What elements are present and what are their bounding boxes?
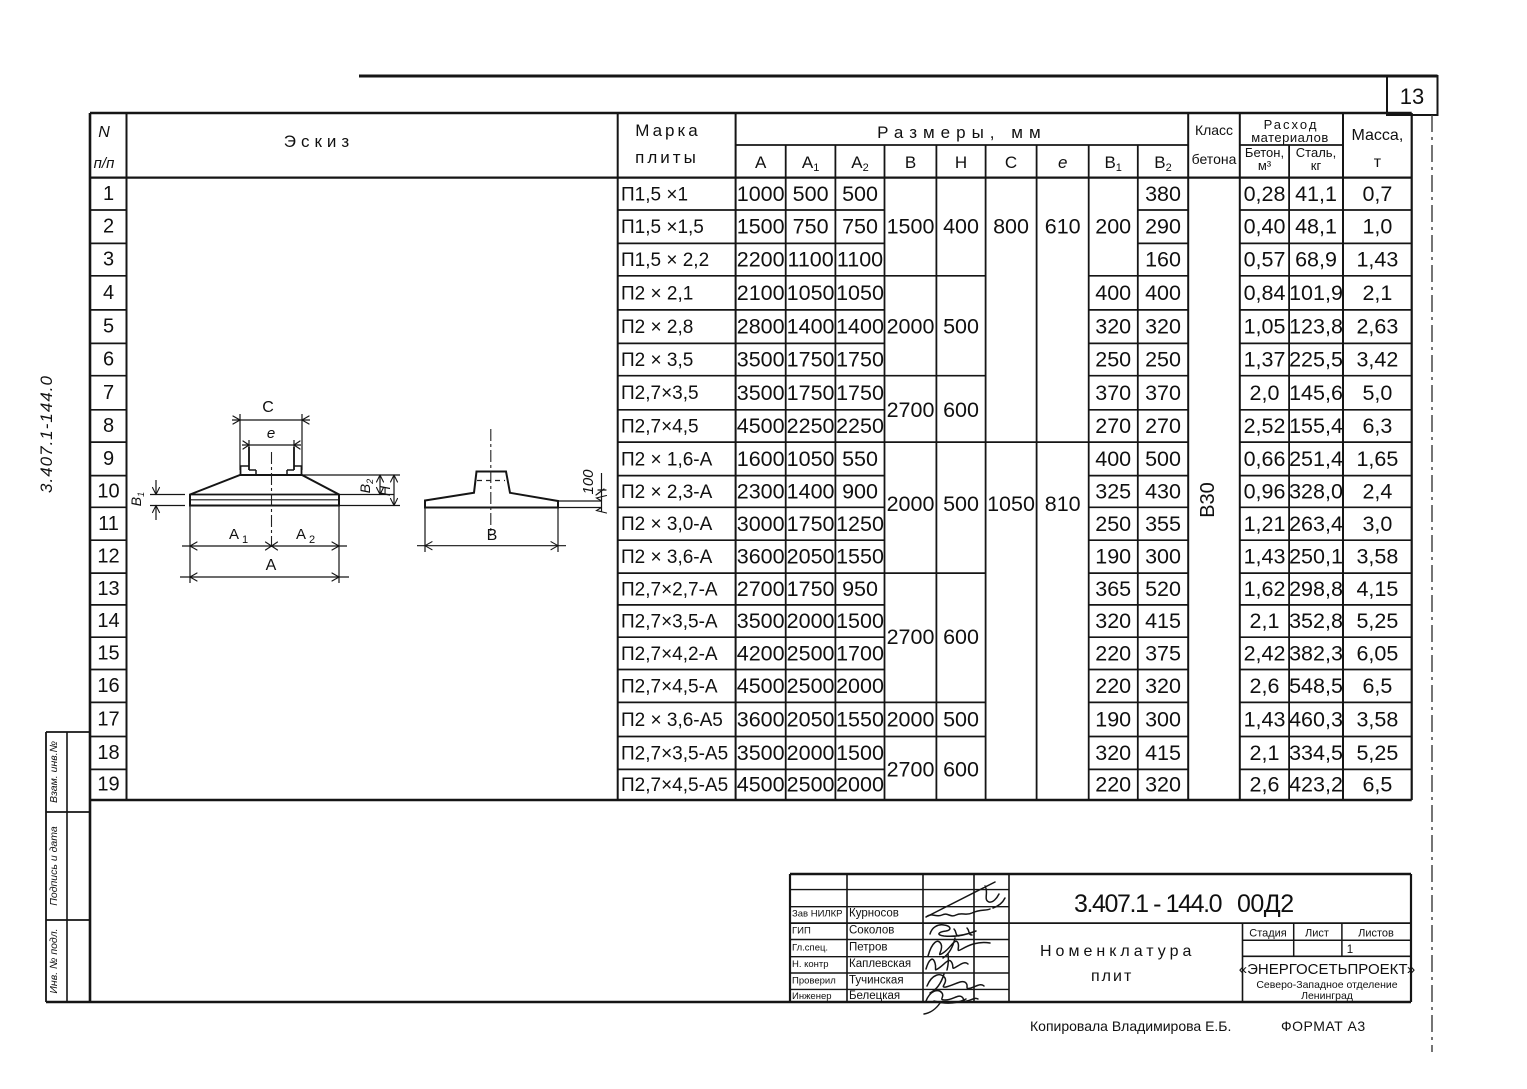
svg-text:12: 12 (97, 546, 119, 568)
svg-text:П2 × 1,6-А: П2 × 1,6-А (621, 449, 713, 470)
svg-text:1400: 1400 (836, 315, 884, 339)
svg-text:7: 7 (103, 382, 114, 404)
svg-text:1750: 1750 (836, 348, 884, 372)
svg-text:C: C (262, 399, 274, 416)
svg-text:1,62: 1,62 (1244, 577, 1286, 601)
svg-text:м³: м³ (1258, 158, 1272, 173)
svg-text:0,7: 0,7 (1362, 182, 1392, 206)
svg-text:Каплевская: Каплевская (849, 958, 911, 970)
svg-text:17: 17 (97, 709, 119, 731)
svg-text:9: 9 (103, 448, 114, 470)
svg-text:Белецкая: Белецкая (849, 990, 900, 1002)
svg-text:220: 220 (1095, 674, 1131, 698)
svg-text:1400: 1400 (787, 480, 835, 504)
svg-text:6,5: 6,5 (1362, 773, 1392, 797)
svg-text:3,58: 3,58 (1356, 708, 1398, 732)
svg-text:e: e (1058, 153, 1067, 172)
svg-text:Листов: Листов (1358, 928, 1394, 940)
svg-text:П2,7×2,7-А: П2,7×2,7-А (621, 580, 718, 601)
svg-text:ФОРМАТ А3: ФОРМАТ А3 (1281, 1018, 1366, 1034)
svg-text:2000: 2000 (887, 492, 935, 516)
svg-text:2,52: 2,52 (1244, 414, 1286, 438)
svg-text:Петров: Петров (849, 942, 887, 954)
svg-text:320: 320 (1145, 315, 1181, 339)
svg-text:2500: 2500 (787, 674, 835, 698)
svg-text:Ленинград: Ленинград (1301, 990, 1353, 1002)
svg-text:1,0: 1,0 (1362, 215, 1392, 239)
svg-text:500: 500 (943, 492, 979, 516)
svg-text:263,4: 263,4 (1289, 512, 1343, 536)
svg-text:1500: 1500 (887, 215, 935, 239)
svg-text:2100: 2100 (737, 281, 785, 305)
svg-text:4200: 4200 (737, 641, 785, 665)
svg-text:2050: 2050 (787, 708, 835, 732)
svg-text:270: 270 (1095, 414, 1131, 438)
svg-text:415: 415 (1145, 741, 1181, 765)
svg-text:155,4: 155,4 (1289, 414, 1343, 438)
svg-text:П2 × 3,5: П2 × 3,5 (621, 350, 693, 371)
svg-text:4,15: 4,15 (1356, 577, 1398, 601)
svg-text:3.407.1-144.0: 3.407.1-144.0 (37, 375, 56, 493)
svg-text:1750: 1750 (787, 381, 835, 405)
svg-text:320: 320 (1145, 773, 1181, 797)
svg-text:Тучинская: Тучинская (849, 975, 904, 987)
svg-text:П2 × 3,0-А: П2 × 3,0-А (621, 514, 713, 535)
svg-text:13: 13 (97, 578, 119, 600)
svg-text:0,66: 0,66 (1244, 447, 1286, 471)
svg-text:370: 370 (1095, 381, 1131, 405)
svg-text:П2,7×4,5: П2,7×4,5 (621, 417, 699, 438)
svg-text:Класс: Класс (1195, 122, 1233, 138)
svg-text:1050: 1050 (987, 492, 1035, 516)
svg-text:B: B (487, 527, 498, 544)
svg-text:2000: 2000 (787, 741, 835, 765)
svg-text:5,25: 5,25 (1356, 741, 1398, 765)
svg-text:68,9: 68,9 (1295, 248, 1337, 272)
svg-text:750: 750 (842, 215, 878, 239)
svg-text:810: 810 (1045, 492, 1081, 516)
svg-text:3,58: 3,58 (1356, 545, 1398, 569)
svg-text:2000: 2000 (887, 708, 935, 732)
svg-text:A: A (755, 153, 767, 172)
svg-text:2: 2 (103, 216, 114, 238)
svg-text:3500: 3500 (737, 741, 785, 765)
svg-text:Лист: Лист (1305, 928, 1329, 940)
svg-text:3500: 3500 (737, 348, 785, 372)
svg-text:16: 16 (97, 675, 119, 697)
svg-text:500: 500 (842, 182, 878, 206)
svg-text:370: 370 (1145, 381, 1181, 405)
svg-text:2300: 2300 (737, 480, 785, 504)
svg-text:Размеры, мм: Размеры, мм (877, 123, 1046, 142)
svg-text:B: B (905, 153, 916, 172)
svg-text:352,8: 352,8 (1289, 609, 1343, 633)
svg-text:П2 × 2,3-А: П2 × 2,3-А (621, 482, 713, 503)
svg-text:8: 8 (103, 415, 114, 437)
svg-text:1750: 1750 (787, 348, 835, 372)
svg-text:1550: 1550 (836, 545, 884, 569)
svg-text:1700: 1700 (836, 641, 884, 665)
svg-text:5,0: 5,0 (1362, 381, 1392, 405)
svg-text:320: 320 (1145, 674, 1181, 698)
svg-text:320: 320 (1095, 609, 1131, 633)
svg-text:2,4: 2,4 (1362, 480, 1392, 504)
svg-text:2000: 2000 (836, 674, 884, 698)
svg-text:Соколов: Соколов (849, 925, 894, 937)
svg-text:2: 2 (309, 534, 315, 546)
svg-text:4500: 4500 (737, 773, 785, 797)
svg-text:3600: 3600 (737, 545, 785, 569)
svg-text:Номенклатура: Номенклатура (1040, 943, 1195, 960)
svg-text:1750: 1750 (787, 512, 835, 536)
svg-text:П2,7×4,5-А5: П2,7×4,5-А5 (621, 775, 728, 796)
svg-text:220: 220 (1095, 641, 1131, 665)
svg-text:A: A (296, 526, 306, 543)
svg-text:Н. контр: Н. контр (792, 959, 829, 970)
svg-text:П2 × 3,6-А5: П2 × 3,6-А5 (621, 710, 723, 731)
svg-text:п/п: п/п (94, 155, 115, 172)
svg-text:«ЭНЕРГОСЕТЬПРОЕКТ»: «ЭНЕРГОСЕТЬПРОЕКТ» (1239, 961, 1415, 978)
svg-text:18: 18 (97, 742, 119, 764)
svg-text:190: 190 (1095, 545, 1131, 569)
svg-text:101,9: 101,9 (1289, 281, 1343, 305)
svg-text:Взам. инв.№: Взам. инв.№ (48, 741, 60, 803)
svg-text:4: 4 (103, 282, 114, 304)
svg-text:48,1: 48,1 (1295, 215, 1337, 239)
svg-text:П2,7×4,5-А: П2,7×4,5-А (621, 677, 718, 698)
svg-text:6: 6 (103, 349, 114, 371)
svg-text:материалов: материалов (1251, 130, 1329, 145)
svg-text:200: 200 (1095, 215, 1131, 239)
svg-text:100: 100 (580, 469, 597, 495)
svg-text:1500: 1500 (836, 741, 884, 765)
svg-text:1500: 1500 (836, 609, 884, 633)
svg-text:1: 1 (103, 183, 114, 205)
svg-text:П1,5 × 2,2: П1,5 × 2,2 (621, 250, 709, 271)
svg-text:300: 300 (1145, 708, 1181, 732)
svg-text:2200: 2200 (737, 248, 785, 272)
svg-text:П2 × 2,1: П2 × 2,1 (621, 283, 693, 304)
svg-text:382,3: 382,3 (1289, 641, 1343, 665)
svg-text:520: 520 (1145, 577, 1181, 601)
svg-text:400: 400 (1095, 447, 1131, 471)
svg-text:Эскиз: Эскиз (284, 132, 354, 151)
svg-text:380: 380 (1145, 182, 1181, 206)
svg-text:Марка: Марка (635, 121, 701, 140)
svg-text:548,5: 548,5 (1289, 674, 1343, 698)
svg-text:3000: 3000 (737, 512, 785, 536)
svg-text:1000: 1000 (737, 182, 785, 206)
svg-text:В30: В30 (1197, 482, 1219, 518)
svg-text:1,43: 1,43 (1244, 545, 1286, 569)
svg-text:225,5: 225,5 (1289, 348, 1343, 372)
svg-text:Копировала Владимирова Е.Б.: Копировала Владимирова Е.Б. (1030, 1018, 1231, 1034)
svg-text:2050: 2050 (787, 545, 835, 569)
svg-text:220: 220 (1095, 773, 1131, 797)
svg-text:1: 1 (242, 534, 248, 546)
svg-text:600: 600 (943, 625, 979, 649)
svg-text:2500: 2500 (787, 641, 835, 665)
svg-text:250: 250 (1145, 348, 1181, 372)
svg-text:11: 11 (98, 513, 119, 535)
svg-text:2000: 2000 (887, 315, 935, 339)
svg-text:6,5: 6,5 (1362, 674, 1392, 698)
svg-text:4500: 4500 (737, 674, 785, 698)
svg-text:Курносов: Курносов (849, 908, 899, 920)
svg-text:2250: 2250 (836, 414, 884, 438)
svg-text:6,05: 6,05 (1356, 641, 1398, 665)
svg-text:1250: 1250 (836, 512, 884, 536)
svg-text:0,57: 0,57 (1244, 248, 1286, 272)
svg-text:298,8: 298,8 (1289, 577, 1343, 601)
svg-text:430: 430 (1145, 480, 1181, 504)
svg-text:1,21: 1,21 (1244, 512, 1286, 536)
svg-text:423,2: 423,2 (1289, 773, 1343, 797)
svg-text:5: 5 (103, 316, 114, 338)
svg-text:250,1: 250,1 (1289, 545, 1343, 569)
svg-text:1050: 1050 (787, 281, 835, 305)
svg-text:3500: 3500 (737, 609, 785, 633)
svg-text:ГИП: ГИП (792, 926, 811, 937)
svg-text:e: e (267, 425, 275, 442)
svg-text:900: 900 (842, 480, 878, 504)
svg-text:A: A (229, 526, 239, 543)
svg-text:2,63: 2,63 (1356, 315, 1398, 339)
svg-text:2,42: 2,42 (1244, 641, 1286, 665)
svg-text:1100: 1100 (787, 248, 833, 272)
svg-text:2,1: 2,1 (1362, 281, 1392, 305)
svg-text:Стадия: Стадия (1249, 928, 1287, 940)
svg-text:415: 415 (1145, 609, 1181, 633)
svg-text:251,4: 251,4 (1289, 447, 1343, 471)
svg-text:Проверил: Проверил (792, 976, 836, 987)
svg-text:750: 750 (793, 215, 829, 239)
svg-text:320: 320 (1095, 315, 1131, 339)
svg-text:1750: 1750 (836, 381, 884, 405)
svg-text:1500: 1500 (737, 215, 785, 239)
svg-text:плиты: плиты (635, 148, 699, 167)
svg-text:2,1: 2,1 (1250, 741, 1280, 765)
svg-text:15: 15 (97, 642, 119, 664)
svg-text:2250: 2250 (787, 414, 835, 438)
svg-text:П1,5 ×1: П1,5 ×1 (621, 184, 688, 205)
svg-text:123,8: 123,8 (1289, 315, 1343, 339)
svg-text:2000: 2000 (836, 773, 884, 797)
svg-text:1,37: 1,37 (1244, 348, 1286, 372)
svg-text:550: 550 (842, 447, 878, 471)
svg-text:250: 250 (1095, 512, 1131, 536)
svg-text:800: 800 (993, 215, 1029, 239)
svg-text:2,0: 2,0 (1250, 381, 1280, 405)
svg-text:1,43: 1,43 (1244, 708, 1286, 732)
svg-text:2,6: 2,6 (1250, 773, 1280, 797)
svg-text:400: 400 (943, 215, 979, 239)
svg-text:41,1: 41,1 (1295, 182, 1337, 206)
svg-text:1,65: 1,65 (1356, 447, 1398, 471)
svg-text:2000: 2000 (787, 609, 835, 633)
svg-text:19: 19 (97, 774, 119, 796)
svg-text:П2,7×4,2-А: П2,7×4,2-А (621, 644, 718, 665)
svg-text:1600: 1600 (737, 447, 785, 471)
svg-text:0,96: 0,96 (1244, 480, 1286, 504)
svg-text:0,84: 0,84 (1244, 281, 1286, 305)
svg-text:6,3: 6,3 (1362, 414, 1392, 438)
svg-text:1,43: 1,43 (1356, 248, 1398, 272)
svg-text:600: 600 (943, 398, 979, 422)
svg-text:13: 13 (1400, 84, 1424, 109)
svg-text:3600: 3600 (737, 708, 785, 732)
svg-text:П2,7×3,5: П2,7×3,5 (621, 383, 699, 404)
svg-text:1050: 1050 (787, 447, 835, 471)
svg-text:H: H (955, 153, 967, 172)
svg-text:145,6: 145,6 (1289, 381, 1343, 405)
svg-text:10: 10 (97, 481, 119, 503)
svg-text:2,6: 2,6 (1250, 674, 1280, 698)
svg-text:Инженер: Инженер (792, 991, 832, 1002)
svg-text:950: 950 (842, 577, 878, 601)
svg-text:2800: 2800 (737, 315, 785, 339)
svg-text:2500: 2500 (787, 773, 835, 797)
svg-text:1550: 1550 (836, 708, 884, 732)
svg-text:600: 600 (943, 757, 979, 781)
svg-text:3,0: 3,0 (1362, 512, 1392, 536)
svg-text:0,40: 0,40 (1244, 215, 1286, 239)
svg-text:Гл.спец.: Гл.спец. (792, 943, 828, 954)
svg-text:A: A (266, 557, 277, 574)
svg-text:кг: кг (1311, 158, 1322, 173)
svg-text:2,1: 2,1 (1250, 609, 1280, 633)
svg-text:365: 365 (1095, 577, 1131, 601)
svg-text:П1,5 ×1,5: П1,5 ×1,5 (621, 217, 704, 238)
svg-text:0,28: 0,28 (1244, 182, 1286, 206)
svg-text:14: 14 (97, 610, 119, 632)
svg-text:1750: 1750 (787, 577, 835, 601)
svg-text:400: 400 (1095, 281, 1131, 305)
svg-text:1050: 1050 (836, 281, 884, 305)
svg-text:П2,7×3,5-А5: П2,7×3,5-А5 (621, 744, 728, 765)
svg-text:190: 190 (1095, 708, 1131, 732)
svg-text:3,42: 3,42 (1356, 348, 1398, 372)
svg-text:2700: 2700 (887, 757, 935, 781)
svg-text:1100: 1100 (837, 248, 883, 272)
svg-text:Инв. № подл.: Инв. № подл. (48, 928, 60, 993)
svg-text:2700: 2700 (737, 577, 785, 601)
svg-text:500: 500 (1145, 447, 1181, 471)
svg-text:Подпись и дата: Подпись и дата (48, 826, 60, 906)
svg-text:3.407.1 - 144.0: 3.407.1 - 144.0 (1074, 890, 1222, 918)
svg-text:325: 325 (1095, 480, 1131, 504)
svg-text:270: 270 (1145, 414, 1181, 438)
svg-text:П2,7×3,5-А: П2,7×3,5-А (621, 612, 718, 633)
svg-text:250: 250 (1095, 348, 1131, 372)
svg-text:320: 320 (1095, 741, 1131, 765)
svg-text:2700: 2700 (887, 625, 935, 649)
svg-text:300: 300 (1145, 545, 1181, 569)
svg-text:Н: Н (377, 485, 393, 496)
svg-text:1400: 1400 (787, 315, 835, 339)
svg-text:328,0: 328,0 (1289, 480, 1343, 504)
svg-text:400: 400 (1145, 281, 1181, 305)
svg-text:1,05: 1,05 (1244, 315, 1286, 339)
svg-text:C: C (1005, 153, 1017, 172)
svg-text:плит: плит (1091, 968, 1133, 985)
svg-text:2700: 2700 (887, 398, 935, 422)
svg-text:5,25: 5,25 (1356, 609, 1398, 633)
svg-text:160: 160 (1145, 248, 1181, 272)
svg-text:П2 × 2,8: П2 × 2,8 (621, 317, 693, 338)
svg-text:375: 375 (1145, 641, 1181, 665)
svg-text:Зав НИЛКР: Зав НИЛКР (792, 909, 843, 920)
svg-text:00Д2: 00Д2 (1237, 890, 1294, 918)
svg-text:Масса,: Масса, (1352, 127, 1404, 144)
svg-text:500: 500 (943, 315, 979, 339)
svg-text:500: 500 (943, 708, 979, 732)
svg-text:334,5: 334,5 (1289, 741, 1343, 765)
svg-text:П2 × 3,6-А: П2 × 3,6-А (621, 547, 713, 568)
svg-text:460,3: 460,3 (1289, 708, 1343, 732)
svg-text:4500: 4500 (737, 414, 785, 438)
svg-text:1: 1 (1347, 944, 1353, 956)
svg-text:610: 610 (1045, 215, 1081, 239)
svg-text:3: 3 (103, 249, 114, 271)
svg-text:т: т (1374, 154, 1382, 171)
svg-text:355: 355 (1145, 512, 1181, 536)
svg-text:290: 290 (1145, 215, 1181, 239)
svg-text:500: 500 (793, 182, 829, 206)
svg-text:бетона: бетона (1192, 151, 1237, 167)
svg-text:3500: 3500 (737, 381, 785, 405)
svg-text:N: N (98, 124, 110, 141)
